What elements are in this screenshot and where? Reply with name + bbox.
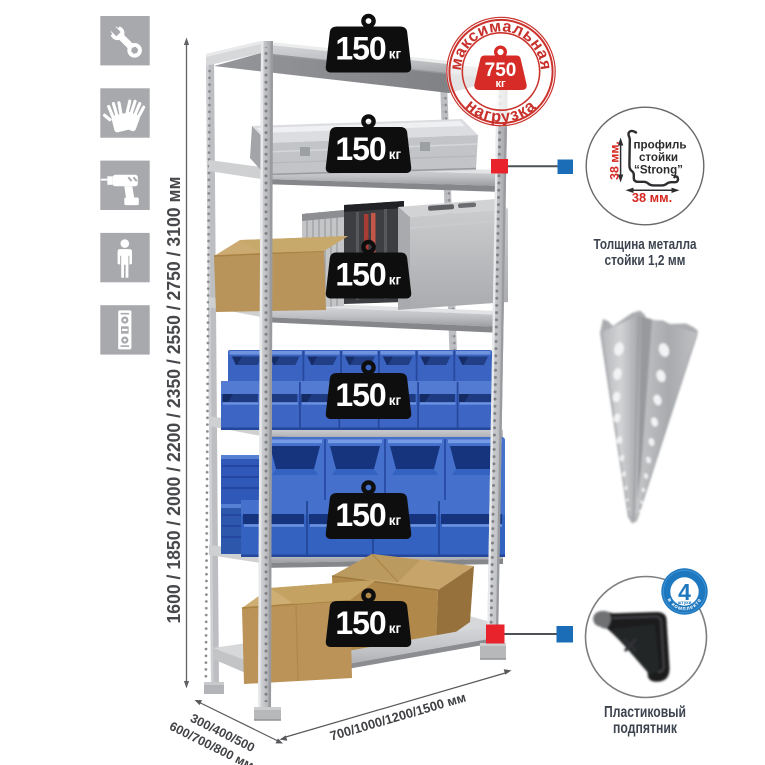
svg-text:кг: кг (495, 78, 506, 90)
svg-text:Пластиковый: Пластиковый (604, 704, 686, 721)
svg-text:стойки 1,2 мм: стойки 1,2 мм (605, 252, 686, 269)
svg-text:стойки: стойки (639, 151, 678, 164)
svg-text:штуки: штуки (678, 600, 692, 605)
svg-text:профиль: профиль (634, 139, 687, 152)
svg-text:38 мм.: 38 мм. (608, 141, 622, 180)
svg-text:Толщина металла: Толщина металла (594, 236, 698, 253)
svg-text:“Strong”: “Strong” (634, 164, 683, 177)
svg-text:38 мм.: 38 мм. (632, 190, 672, 205)
svg-text:подпятник: подпятник (613, 720, 677, 737)
svg-text:1600 / 1850 / 2000 / 2200 / 23: 1600 / 1850 / 2000 / 2200 / 2350 / 2550 … (163, 177, 184, 624)
